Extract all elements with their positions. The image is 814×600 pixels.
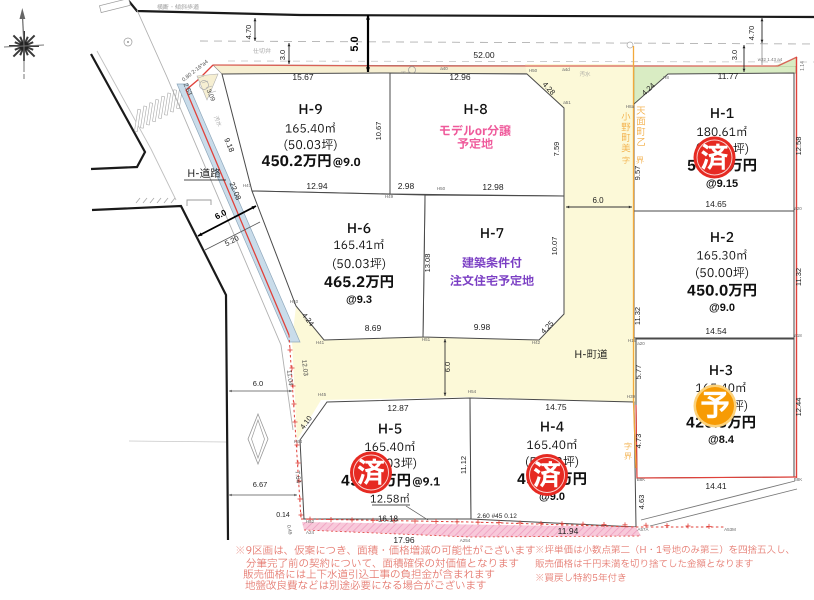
svg-text:H42: H42 [532,340,541,345]
svg-text:H64: H64 [294,439,303,444]
svg-text:6.0: 6.0 [443,362,452,372]
svg-text:11.12: 11.12 [459,456,468,474]
svg-text:12.98: 12.98 [482,182,504,192]
svg-text:52.00: 52.00 [473,50,495,60]
svg-text:12.44: 12.44 [794,398,803,417]
svg-text:6.0: 6.0 [592,196,604,205]
svg-text:@8.4: @8.4 [708,434,735,446]
svg-text:14.54: 14.54 [705,326,727,336]
svg-text:12.58: 12.58 [794,137,803,156]
svg-text:15.67: 15.67 [292,72,314,82]
svg-text:B8K: B8K [637,477,646,482]
svg-text:11.32: 11.32 [633,307,642,325]
svg-text:14.41: 14.41 [705,481,727,491]
svg-text:3.0: 3.0 [278,50,287,60]
svg-text:@9.0: @9.0 [709,302,735,314]
svg-text:10.07: 10.07 [550,237,559,256]
svg-text:H40: H40 [290,299,299,304]
svg-text:6.0: 6.0 [253,379,263,388]
svg-text:A254: A254 [460,538,471,543]
svg-text:7.59: 7.59 [552,142,561,157]
svg-text:16.18: 16.18 [378,515,399,524]
svg-text:a20: a20 [637,341,645,346]
svg-text:11.94: 11.94 [558,526,579,536]
svg-text:A57A: A57A [637,527,648,532]
svg-text:5.77: 5.77 [634,365,643,380]
svg-text:a18: a18 [794,333,802,338]
svg-text:6.67: 6.67 [253,480,268,489]
svg-text:w32 1.43 a4: w32 1.43 a4 [758,57,783,62]
svg-text:11.77: 11.77 [718,71,739,81]
svg-text:4.63: 4.63 [637,495,646,510]
svg-text:H50: H50 [529,68,538,73]
svg-text:a40: a40 [440,66,448,71]
svg-text:H47: H47 [243,183,252,188]
svg-text:H41: H41 [316,340,325,345]
svg-text:0.14: 0.14 [276,512,290,519]
svg-text:a51: a51 [563,100,571,105]
svg-text:10.67: 10.67 [374,122,383,141]
svg-text:A53M: A53M [724,527,736,532]
svg-text:H8a: H8a [626,104,635,109]
svg-text:@9.15: @9.15 [706,178,738,190]
svg-text:H39: H39 [627,394,636,399]
svg-text:4.73: 4.73 [634,434,643,449]
svg-text:a20: a20 [794,206,802,211]
svg-text:a4d: a4d [562,67,570,72]
svg-text:3.0: 3.0 [730,50,739,60]
svg-text:H8: H8 [663,75,669,80]
svg-text:9.98: 9.98 [474,322,491,332]
svg-text:2.60 #45 0.12: 2.60 #45 0.12 [477,513,517,520]
svg-text:H54: H54 [468,389,477,394]
svg-text:2.98: 2.98 [398,181,415,191]
svg-text:8.69: 8.69 [365,323,382,333]
svg-text:A24: A24 [306,530,315,535]
svg-text:4.70: 4.70 [244,25,253,40]
svg-text:H45: H45 [318,392,327,397]
svg-text:11.32: 11.32 [794,268,803,286]
svg-text:12.87: 12.87 [387,403,409,413]
svg-text:7.64: 7.64 [293,470,301,484]
svg-text:14.65: 14.65 [705,199,727,209]
svg-text:9.57: 9.57 [633,166,642,181]
svg-text:H19: H19 [628,338,637,343]
svg-text:4.70: 4.70 [747,26,756,41]
svg-text:17.96: 17.96 [393,535,415,545]
svg-text:5.0: 5.0 [349,36,361,51]
svg-text:H49: H49 [385,194,394,199]
svg-text:B8K: B8K [794,477,803,482]
svg-text:12.94: 12.94 [306,181,328,191]
svg-text:13.08: 13.08 [423,254,432,273]
svg-text:14.75: 14.75 [545,402,567,412]
svg-text:H52: H52 [306,519,315,524]
svg-text:H51: H51 [422,337,431,342]
svg-text:H50: H50 [437,186,446,191]
svg-text:@9.3: @9.3 [346,294,372,306]
svg-text:1.14: 1.14 [800,61,806,71]
svg-text:12.96: 12.96 [449,72,471,82]
